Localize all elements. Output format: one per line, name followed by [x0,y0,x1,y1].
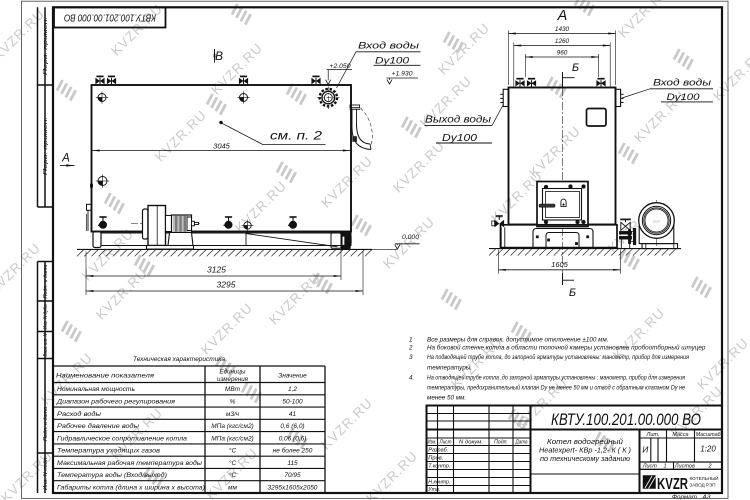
svg-text:Расход воды: Расход воды [57,410,101,418]
svg-text:Лит.: Лит. [646,432,660,438]
svg-text:Габариты котла (длина х ширина: Габариты котла (длина х ширина х высота) [57,483,205,491]
svg-text:KVZR.RU: KVZR.RU [390,138,447,195]
svg-text:Подп. и дата: Подп. и дата [43,407,49,441]
svg-text:Дата: Дата [515,440,528,446]
svg-text:Рабочее давление воды: Рабочее давление воды [57,422,139,430]
svg-text:KVZR.RU: KVZR.RU [108,1,165,58]
svg-text:Выход воды: Выход воды [425,114,492,125]
svg-text:ЗАВОД РЭП: ЗАВОД РЭП [690,483,717,489]
svg-text:температуры.: температуры. [427,365,472,372]
svg-text:Б: Б [572,62,579,74]
svg-text:И: И [642,444,649,454]
svg-text:KVZR.RU: KVZR.RU [198,300,255,357]
svg-text:КВТУ.100.201.00.000 ВО: КВТУ.100.201.00.000 ВО [64,12,156,24]
svg-text:50-100: 50-100 [282,398,303,405]
svg-text:+1.930: +1.930 [392,70,413,77]
svg-text:KVZR.RU: KVZR.RU [93,265,150,322]
svg-text:Подп. и дата: Подп. и дата [43,265,49,299]
svg-text:Диапазон рабочего регулировани: Диапазон рабочего регулирования [56,397,176,405]
svg-text:Dy100: Dy100 [375,55,410,66]
svg-text:0,06 (0,6): 0,06 (0,6) [279,435,307,442]
svg-text:3045: 3045 [213,142,231,151]
svg-text:Масштаб: Масштаб [696,432,722,438]
svg-text:КОТЕЛЬНЫЙ: КОТЕЛЬНЫЙ [690,474,720,482]
svg-text:KVZR: KVZR [657,476,688,493]
svg-text:Инв. N подл.: Инв. N подл. [43,456,49,490]
svg-text:В: В [215,49,223,63]
svg-text:Т.контр.: Т.контр. [428,464,450,470]
svg-text:3295х1605х2050: 3295х1605х2050 [268,484,318,491]
svg-text:КВТУ.100.201.00.000 ВО: КВТУ.100.201.00.000 ВО [551,411,701,429]
svg-text:KVZR.RU: KVZR.RU [615,0,672,41]
svg-text:0.000: 0.000 [402,234,419,241]
svg-text:1:20: 1:20 [700,444,716,453]
svg-text:Значение: Значение [278,373,307,380]
svg-text:Dy100: Dy100 [442,133,478,144]
svg-text:4.: 4. [409,375,414,382]
svg-text:KVZR.RU: KVZR.RU [232,178,289,235]
svg-text:Вход воды: Вход воды [653,78,711,89]
svg-text:Heatexpert- КВр -1,2- К ( К ): Heatexpert- КВр -1,2- К ( К ) [539,448,631,455]
svg-text:измерения: измерения [217,376,249,383]
svg-text:А: А [61,153,70,165]
svg-text:41: 41 [289,411,297,418]
svg-text:КВЗР: КВЗР [653,219,661,223]
svg-text:Лист: Лист [439,440,452,446]
svg-text:KVZR.RU: KVZR.RU [152,107,209,164]
svg-text:А3: А3 [701,494,711,500]
svg-text:см. п. 2: см. п. 2 [270,131,323,143]
svg-text:мм: мм [228,484,237,491]
svg-text:70/95: 70/95 [284,472,301,479]
svg-text:115: 115 [287,460,298,467]
svg-text:1: 1 [663,464,666,470]
svg-text:1260: 1260 [555,38,570,45]
svg-text:На боковой стенке котла в обла: На боковой стенке котла в области топочн… [427,344,706,352]
svg-text:KVZR.RU: KVZR.RU [380,214,437,271]
svg-text:по техническому заданию: по техническому заданию [540,455,631,463]
svg-text:Температура воды (Вход/выход): Температура воды (Вход/выход) [57,471,167,479]
svg-text:Техническая характеристика: Техническая характеристика [133,356,225,363]
svg-text:1,2: 1,2 [288,386,297,393]
svg-text:На подводящей трубе котла, д: На подводящей трубе котла, до запорной а… [427,353,690,361]
svg-text:На отводящей трубе котла ,до з: На отводящей трубе котла ,до запорной ар… [427,374,686,382]
svg-text:1: 1 [409,337,413,344]
svg-text:температуры, предохранительный: температуры, предохранительный клапан Dу… [427,384,685,392]
svg-text:°С: °С [229,447,237,455]
svg-text:Пров.: Пров. [428,456,443,462]
svg-text:°С: °С [229,471,237,479]
svg-text:Все размеры для справок, допус: Все размеры для справок, допустимое откл… [427,336,609,344]
svg-text:Лист: Лист [642,464,658,470]
svg-text:KVZR.RU: KVZR.RU [318,395,375,452]
svg-text:Масса: Масса [672,432,688,438]
svg-text:2: 2 [707,464,711,470]
svg-text:Перв. примен.: Перв. примен. [43,117,49,175]
svg-text:Перв. примен.: Перв. примен. [43,17,49,75]
svg-text:0,6 (6,0): 0,6 (6,0) [280,423,304,430]
svg-text:1430: 1430 [555,26,570,33]
svg-text:Разраб.: Разраб. [428,448,448,454]
svg-text:1605: 1605 [551,260,569,269]
svg-text:Температура уходящих газов: Температура уходящих газов [57,447,161,455]
svg-text:Изм.: Изм. [428,440,437,446]
svg-text:Подп.: Подп. [494,440,508,446]
svg-text:Котел водогрейный: Котел водогрейный [547,438,623,446]
svg-text:KVZR.RU: KVZR.RU [710,46,750,103]
svg-text:+2.050: +2.050 [330,63,351,70]
svg-text:3295: 3295 [217,280,236,290]
svg-text:960: 960 [557,50,568,57]
svg-text:МПа (кгс/см2): МПа (кгс/см2) [211,423,253,430]
svg-text:Инв. N дубл.: Инв. N дубл. [43,304,49,330]
svg-text:N докум.: N докум. [459,440,483,446]
svg-text:МПа (кгс/см2): МПа (кгс/см2) [211,435,253,442]
svg-text:Листов: Листов [674,464,695,470]
svg-text:Формат: Формат [672,494,697,500]
svg-text:Утв.: Утв. [428,487,440,493]
svg-text:KVZR.RU: KVZR.RU [435,20,492,77]
svg-text:KVZR.RU: KVZR.RU [79,226,136,283]
svg-text:2: 2 [408,345,413,352]
svg-text:менее 50 мм.: менее 50 мм. [427,395,466,402]
svg-text:%: % [230,398,236,405]
svg-text:Н.контр.: Н.контр. [428,480,450,486]
svg-text:KVZR.RU: KVZR.RU [318,153,375,210]
svg-text:Б: Б [569,287,576,299]
svg-text:°С: °С [229,459,237,467]
svg-text:м3/ч: м3/ч [226,411,240,418]
svg-text:Максимальная рабочая температу: Максимальная рабочая температура воды [57,459,202,467]
svg-text:А: А [557,8,568,24]
svg-text:Взам. инв. N: Взам. инв. N [43,333,49,356]
svg-text:KVZR.RU: KVZR.RU [0,6,48,63]
svg-text:Dy100: Dy100 [667,92,701,103]
svg-text:Наименование показателя: Наименование показателя [56,373,155,380]
svg-text:Вход воды: Вход воды [358,40,419,51]
svg-text:3: 3 [409,354,413,361]
svg-text:МВт: МВт [225,386,241,393]
svg-text:Единицы: Единицы [220,369,246,376]
svg-text:Номинальная мощность: Номинальная мощность [57,386,136,393]
svg-text:Гидравлическое сопротивление к: Гидравлическое сопротивление котла [57,434,187,442]
svg-text:не более 250: не более 250 [273,447,313,455]
svg-text:3125: 3125 [207,265,226,275]
